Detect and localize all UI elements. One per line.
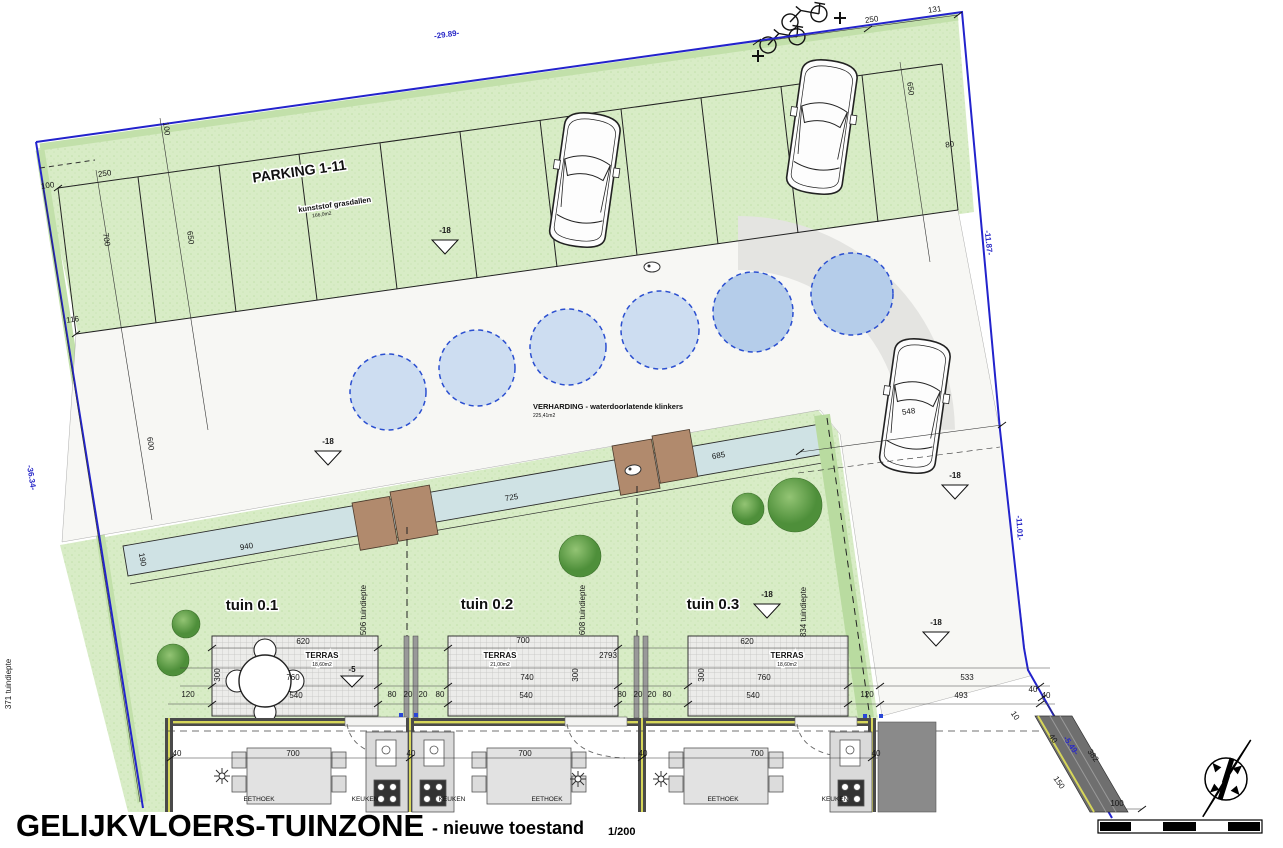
room-label: EETHOEK: [243, 796, 275, 803]
dim-label: 2793: [599, 651, 617, 660]
dim-label: 700: [516, 636, 530, 645]
dim-label: 548: [901, 406, 916, 417]
dim-label: 493: [954, 691, 968, 700]
boundary-dim: -11.01-: [1014, 515, 1025, 541]
dim-label: 300: [571, 668, 580, 682]
terrace-area-1: 18,60m2: [312, 662, 332, 668]
garden-label-3: tuin 0.3: [687, 596, 740, 613]
door-opening: [345, 717, 407, 726]
garden-depth-label: 834 tuindiepte: [799, 586, 808, 637]
garden-depth-label: 371 tuindiepte: [4, 658, 13, 709]
terrace-area-2: 21,00m2: [490, 662, 510, 668]
dim-label: 40: [173, 749, 182, 758]
terrace-label-1: TERRAS: [306, 651, 340, 660]
sheet-title: GELIJKVLOERS-TUINZONE: [16, 808, 424, 843]
room-label: KEUKEN: [822, 796, 849, 803]
room-label: KEUKEN: [352, 796, 379, 803]
dim-label: 20: [634, 690, 643, 699]
verharding-label: VERHARDING - waterdoorlatende klinkers: [533, 402, 683, 411]
level-marker-label: -18: [322, 437, 334, 446]
dim-label: 40: [407, 749, 416, 758]
garden-label-2: tuin 0.2: [461, 596, 514, 613]
scale-bar: [1098, 820, 1262, 833]
level-marker-label: -5: [348, 665, 356, 674]
dim-label: 80: [663, 690, 672, 699]
level-marker-label: -18: [930, 618, 942, 627]
dim-label: 650: [185, 230, 196, 245]
dim-label: 540: [746, 691, 760, 700]
scale-bar-dim: 100: [1110, 799, 1124, 808]
site-plan-drawing: PARKING 1-11 kunststof grasdallen 166,0m…: [0, 0, 1283, 848]
dim-label: 700: [750, 749, 764, 758]
garden-depth-label: 608 tuindiepte: [578, 584, 587, 635]
dim-label: 80: [618, 690, 627, 699]
room-label: EETHOEK: [531, 796, 563, 803]
dim-label: 120: [860, 690, 874, 699]
dim-label: 700: [518, 749, 532, 758]
dim-label: 620: [740, 637, 754, 646]
dim-label: 20: [419, 690, 428, 699]
dim-label: 740: [520, 673, 534, 682]
dim-label: 650: [905, 81, 916, 96]
sheet-scale: 1/200: [608, 826, 636, 838]
room-label: EETHOEK: [707, 796, 739, 803]
dim-label: 20: [404, 690, 413, 699]
dim-label: 540: [519, 691, 533, 700]
dim-label: 100: [40, 180, 55, 191]
dim-label: 700: [286, 749, 300, 758]
dim-label: 250: [864, 14, 879, 25]
dim-label: 80: [388, 690, 397, 699]
door-opening: [795, 717, 857, 726]
site-plan-sheet: PARKING 1-11 kunststof grasdallen 166,0m…: [0, 0, 1283, 848]
terrace-label-3: TERRAS: [771, 651, 805, 660]
dim-label: 760: [757, 673, 771, 682]
dim-label: 80: [436, 690, 445, 699]
dim-label: 131: [927, 4, 942, 15]
door-opening: [565, 717, 627, 726]
dim-label: 80: [945, 139, 956, 149]
dim-label: 250: [97, 168, 112, 179]
dim-label: 760: [286, 673, 300, 682]
level-marker-label: -18: [761, 590, 773, 599]
dim-label: 620: [296, 637, 310, 646]
dim-label: 40: [639, 749, 648, 758]
level-marker-label: -18: [949, 471, 961, 480]
sheet-subtitle: - nieuwe toestand: [432, 818, 584, 838]
dim-label: 40: [1042, 691, 1051, 700]
dim-label: 540: [289, 691, 303, 700]
garden-label-1: tuin 0.1: [226, 597, 279, 614]
terrace-area-3: 18,60m2: [777, 662, 797, 668]
dim-label: 116: [66, 314, 80, 325]
dim-label: 40: [872, 749, 881, 758]
level-marker-label: -18: [439, 226, 451, 235]
dim-label: 600: [145, 436, 156, 451]
dim-label: 40: [1029, 685, 1038, 694]
room-label: KEUKEN: [439, 796, 466, 803]
dim-label: 120: [181, 690, 195, 699]
dim-label: 300: [697, 668, 706, 682]
garden-depth-label: 506 tuindiepte: [359, 584, 368, 635]
verharding-area-label: 225,41m2: [533, 413, 555, 419]
terrace-label-2: TERRAS: [484, 651, 518, 660]
dim-label: 533: [960, 673, 974, 682]
neighbor-building: [878, 722, 936, 812]
dim-label: 300: [213, 668, 222, 682]
dim-label: 20: [648, 690, 657, 699]
dim-label: 100: [161, 121, 172, 136]
